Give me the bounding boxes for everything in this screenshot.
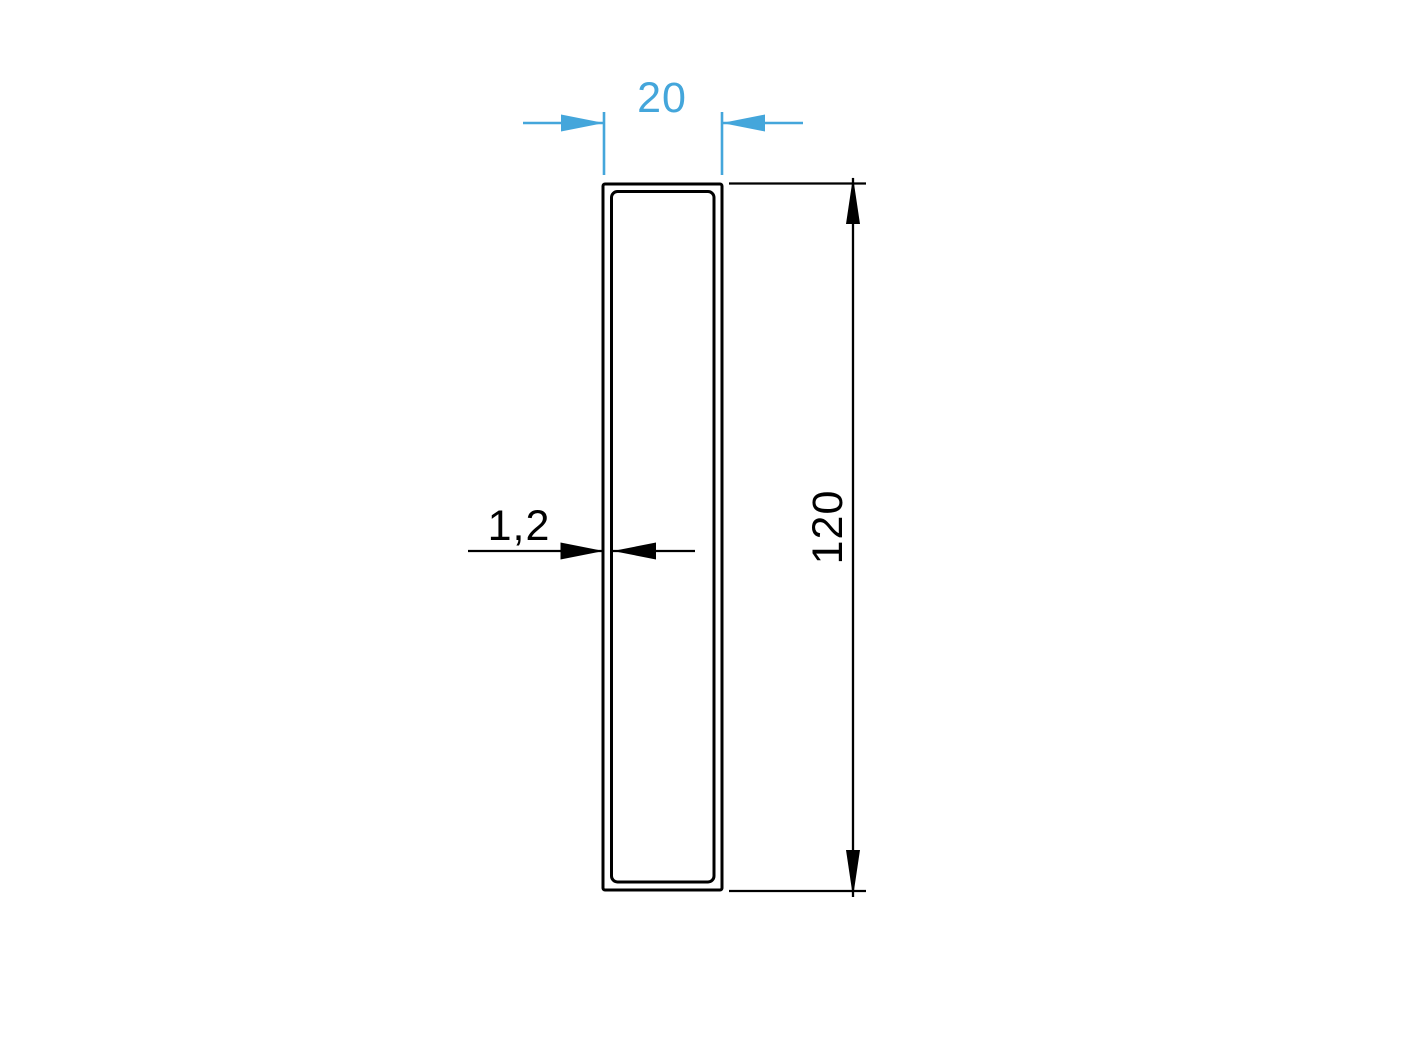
thickness-dim-arrowhead-left (561, 543, 604, 560)
drawing-page: 20 120 1,2 (0, 0, 1417, 1062)
tube-cross-section (603, 184, 722, 890)
wall-thickness-dimension: 1,2 (468, 502, 695, 560)
tube-inner-contour (612, 192, 715, 883)
width-dim-label: 20 (637, 74, 687, 122)
tube-outer-contour (603, 184, 722, 890)
width-dim-arrowhead-left (561, 115, 604, 132)
thickness-dim-label: 1,2 (488, 502, 551, 550)
height-dim-label: 120 (804, 490, 852, 565)
technical-drawing-canvas: 20 120 1,2 (0, 0, 1417, 1062)
thickness-dim-arrowhead-right (613, 543, 656, 560)
width-dimension: 20 (523, 74, 803, 175)
width-dim-arrowhead-right (722, 115, 765, 132)
height-dimension: 120 (729, 177, 866, 897)
